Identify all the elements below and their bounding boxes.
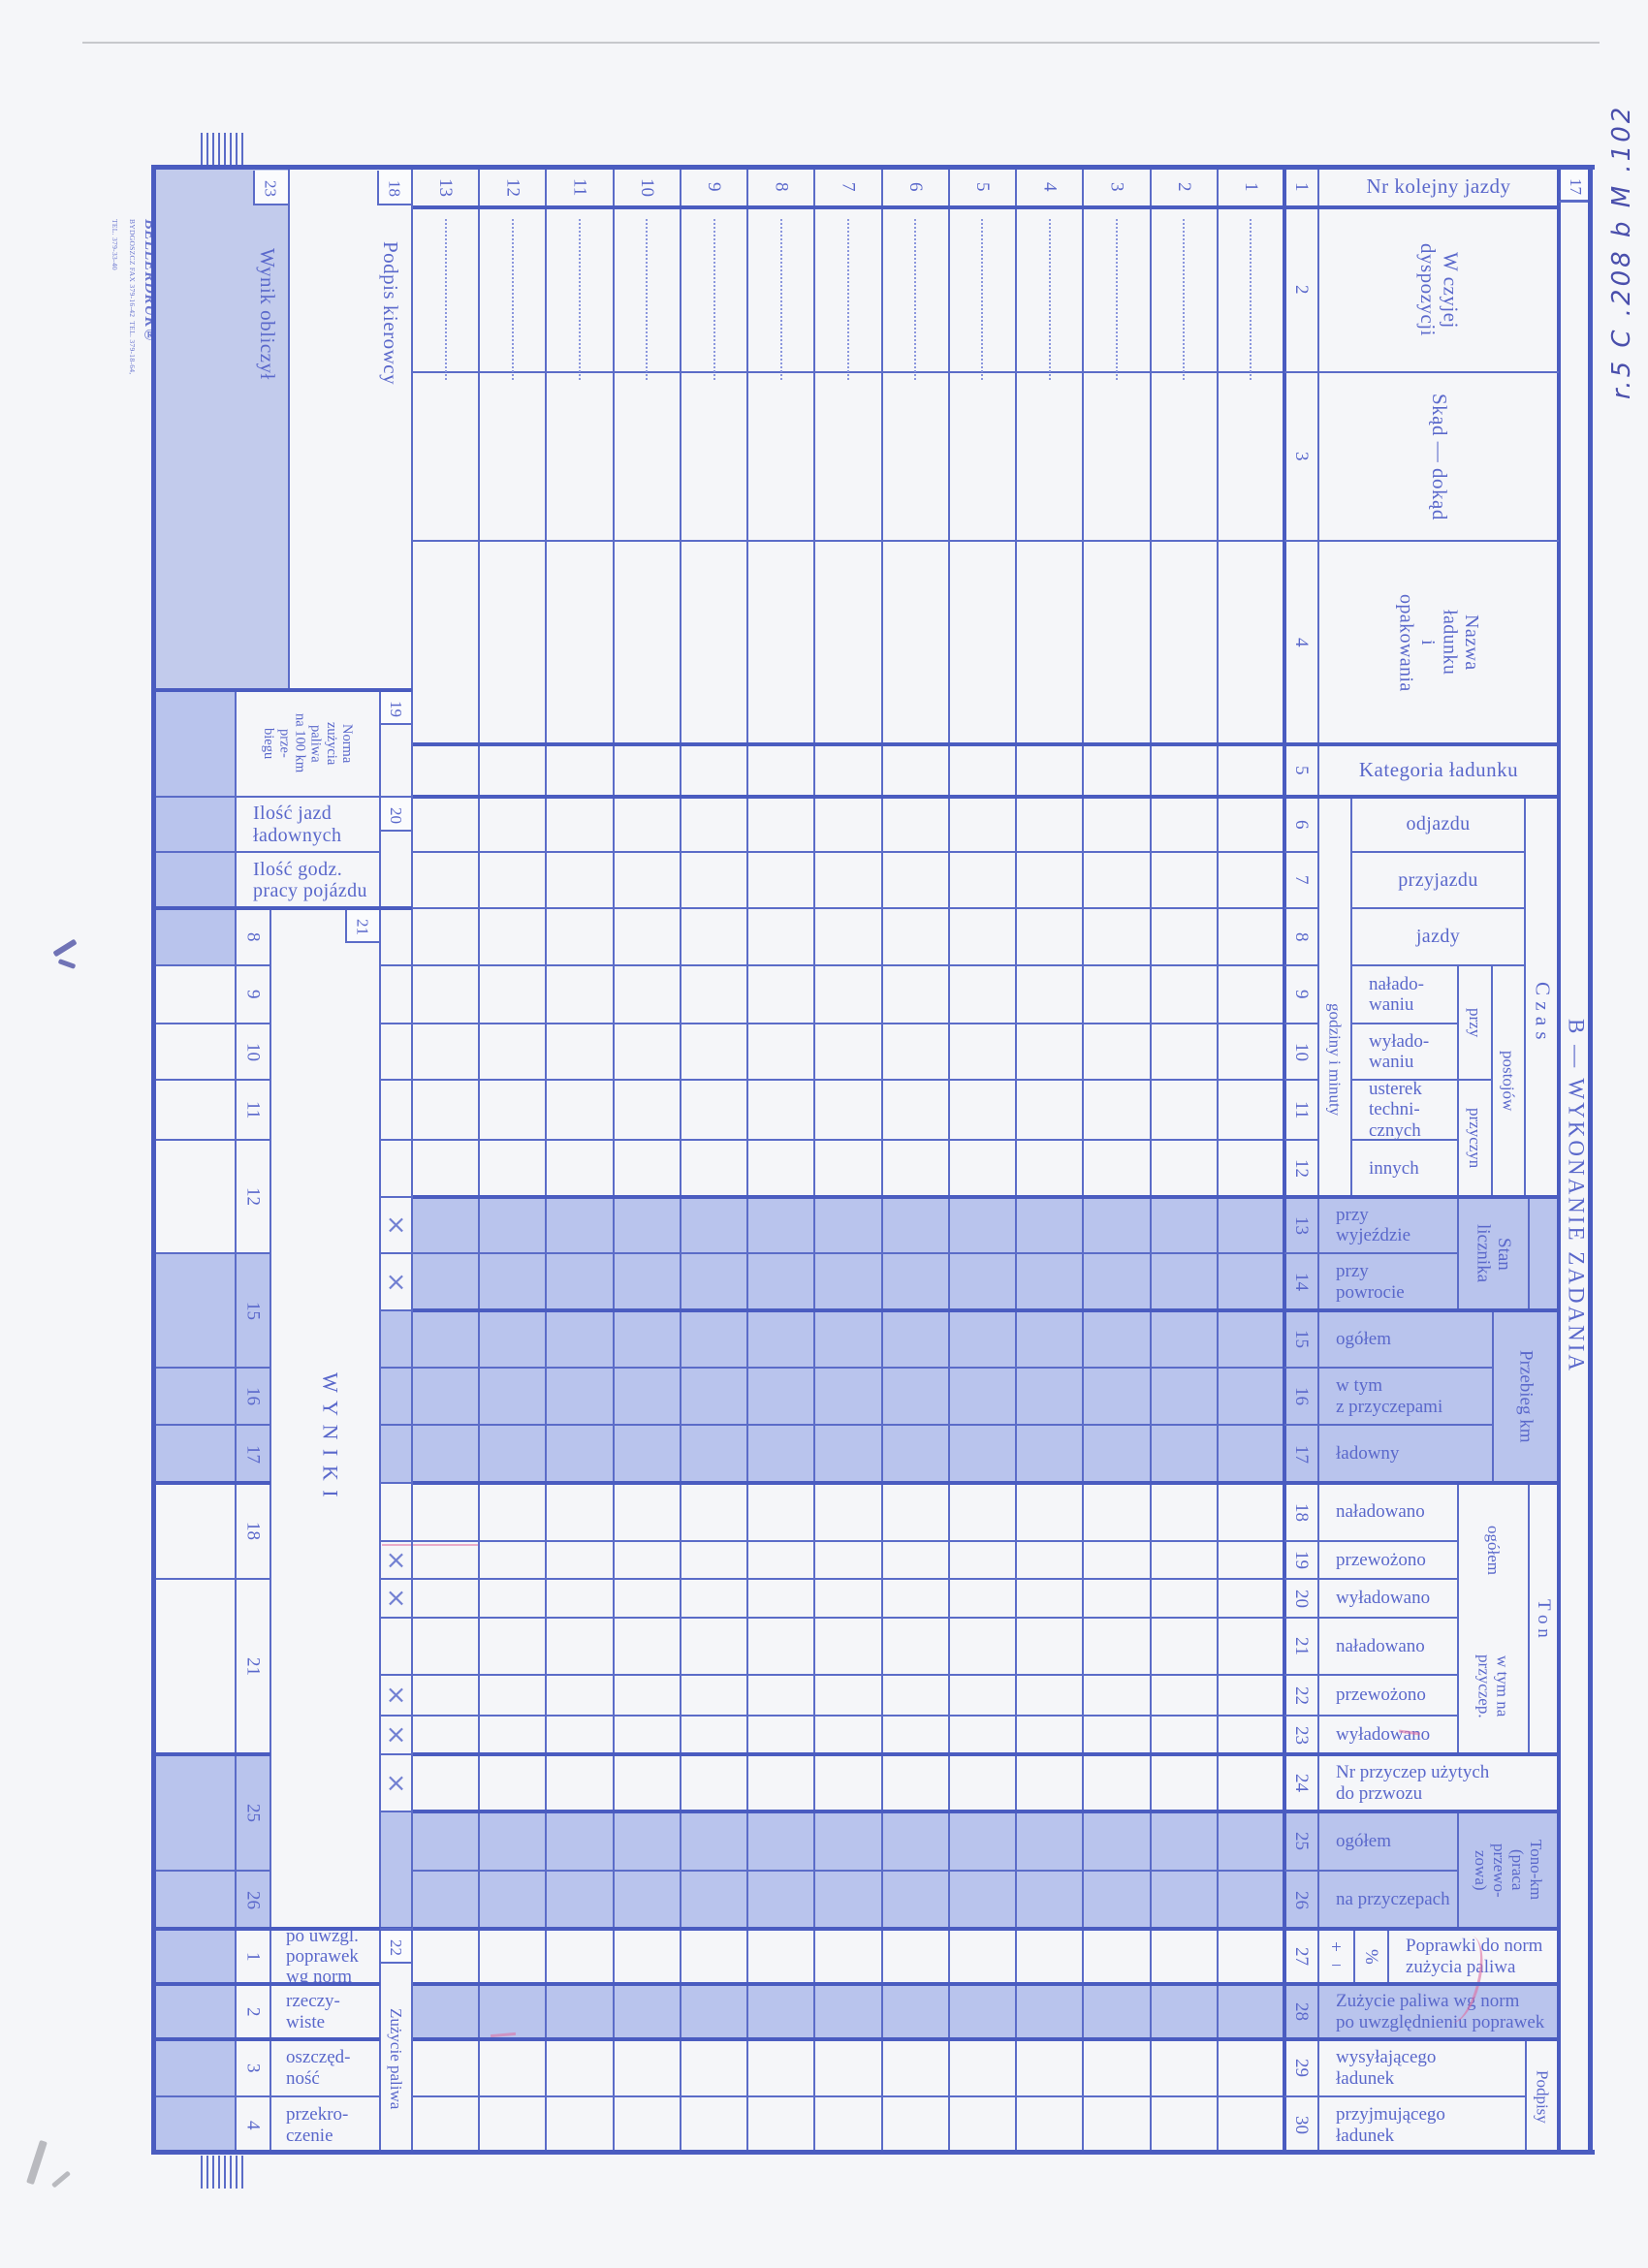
col-label-23: wyładowano [1318,1716,1458,1754]
grid-line [1524,797,1526,1197]
grid-line [1351,907,1525,909]
grid-line [288,167,290,690]
summary-row-number: 11 [238,1089,268,1130]
grid-line [151,1870,270,1872]
trip-number: 3 [1102,167,1131,207]
grid-line [1351,851,1525,853]
grid-line [1284,540,1559,542]
grid-line [1284,1810,1559,1813]
grid-line [151,796,412,798]
shade-grid-28 [412,1984,1284,2039]
form-table: Nr kolejny jazdy W czyjej dyspozycji Ską… [0,0,1648,2268]
registration-hatch-line [201,2156,203,2189]
registration-hatch-line [201,133,203,166]
col-label-1: Nr kolejny jazdy [1318,167,1559,207]
col-label-10: wyłado- waniu [1351,1024,1458,1080]
shade-left-strip-zuzycie [151,1929,236,2154]
col-label-30: przyjmującego ładunek [1318,2096,1526,2154]
column-number: 15 [1287,1319,1316,1360]
grid-line [545,167,547,2154]
column-number: 6 [1287,804,1316,845]
column-number: 23 [1287,1715,1316,1755]
x-mark: × [380,1541,412,1579]
grid-line [1284,1481,1559,1485]
col-label-2: W czyjej dyspozycji [1318,207,1559,372]
summary-row-number: 15 [238,1290,268,1331]
group-podpisy: Podpisy [1526,2039,1559,2154]
column-number: 27 [1287,1937,1316,1977]
grid-line [412,1481,1284,1485]
grid-line [412,1308,1284,1312]
grid-line [412,2037,1284,2041]
field-number-22: 22 [380,1931,412,1964]
summary-row-number: 8 [238,917,268,958]
grid-line [1528,1197,1530,1310]
grid-line [1217,167,1219,2154]
grid-line [151,1481,270,1485]
pencil-mark-1 [26,2140,48,2185]
trip-number: 12 [498,167,527,207]
trip-number: 11 [565,167,594,207]
column-number: 28 [1287,1992,1316,2032]
grid-line [412,1752,1284,1756]
grid-line [380,964,412,966]
x-mark: × [380,1197,412,1253]
summary-row-number: 21 [238,1647,268,1687]
grid-line [1284,1079,1318,1081]
shade-grid-13-17 [412,1197,1284,1483]
grid-line [1284,1139,1318,1141]
column-number: 25 [1287,1821,1316,1862]
signature-dotted-line [713,219,715,380]
label-zuzycie-row-3: oszczęd- ność [270,2039,380,2096]
trip-number: 7 [834,167,863,207]
column-number: 12 [1287,1149,1316,1189]
signature-dotted-line [646,219,648,380]
grid-line [151,2095,380,2097]
column-number: 18 [1287,1492,1316,1532]
summary-row-number: 2 [238,1992,268,2032]
column-number: 30 [1287,2105,1316,2146]
shade-left-strip-band8 [151,908,236,965]
col-label-12: innych [1351,1140,1458,1197]
grid-line [412,742,1284,746]
signature-dotted-line [780,219,782,380]
grid-line [412,1870,1284,1872]
label-wyniki: W Y N I K I [312,1349,347,1522]
col-label-9: nałado- waniu [1351,965,1458,1024]
group-przy: przy [1458,965,1492,1080]
grid-line [1150,167,1152,2154]
registration-hatch-line [230,133,232,166]
col-label-7: przyjazdu [1351,852,1525,908]
grid-line [1492,1310,1494,1483]
column-number: 1 [1287,167,1316,207]
grid-line [1284,1308,1559,1312]
col-label-28: Zużycie paliwa wg norm po uwzględnieniu … [1318,1984,1559,2039]
grid-line [411,167,413,2154]
label-zuzycie-paliwa: Zużycie paliwa [380,1964,412,2154]
registration-hatch-line [236,2156,238,2189]
column-number: 10 [1287,1031,1316,1072]
grid-line [1351,1139,1458,1141]
column-number: 26 [1287,1879,1316,1920]
col-label-3: Skąd — dokąd [1318,372,1559,541]
column-number: 7 [1287,860,1316,900]
grid-line [813,167,815,2154]
grid-line [151,1252,270,1254]
grid-line [1284,1195,1559,1199]
grid-line [1284,851,1318,853]
grid-line [380,1139,412,1141]
grid-line [1351,1079,1492,1081]
group-czas: C z a s [1525,797,1559,1197]
grid-line [151,851,380,853]
x-mark: × [380,1253,412,1310]
field-number-21: 21 [345,910,380,943]
grid-line [1284,964,1318,966]
signature-dotted-line [445,219,447,380]
col-27-plus-minus: + − [1318,1929,1354,1984]
grid-line [1284,1870,1458,1872]
x-mark: × [380,1675,412,1716]
column-number: 29 [1287,2048,1316,2089]
signature-dotted-line [579,219,581,380]
col-label-25: ogółem [1318,1811,1458,1871]
grid-line [412,1540,1284,1542]
trip-number: 5 [967,167,997,207]
group-stan-licznika: Stan licznika [1458,1197,1529,1310]
col-label-29: wysyłającego ładunek [1318,2039,1526,2096]
group-w-tym-na-przyczep: w tym na przyczep. [1458,1618,1529,1754]
grid-line [1015,167,1017,2154]
grid-line [412,907,1284,909]
col-label-11: usterek techni- cznych [1351,1080,1458,1140]
x-mark: × [380,1754,412,1811]
column-number: 9 [1287,974,1316,1015]
grid-line [151,1752,270,1756]
field-number-19: 19 [380,692,412,725]
grid-line [1528,1483,1530,1754]
grid-line [412,1424,1284,1426]
pencil-mark-2 [51,2171,71,2189]
grid-line [412,1982,1284,1986]
grid-line [380,1079,412,1081]
grid-line [412,1674,1284,1676]
summary-row-number: 25 [238,1792,268,1833]
registration-hatch-line [241,133,243,166]
grid-line [151,688,412,692]
group-ogolem: ogółem [1458,1483,1529,1618]
grid-line [1284,1752,1559,1756]
trip-number: 10 [632,167,661,207]
label-zuzycie-row-4: przekro- czenie [270,2096,380,2154]
grid-line [1284,1424,1493,1426]
grid-line [746,167,748,2154]
column-number: 13 [1287,1205,1316,1245]
frame-left [151,165,156,2155]
registration-hatch-line [206,133,208,166]
group-postojow: postojów [1492,965,1525,1197]
registration-hatch-line [212,133,214,166]
registration-hatch-line [212,2156,214,2189]
grid-line [1457,1483,1459,1754]
col-label-22: przewożono [1318,1675,1458,1716]
grid-line [151,964,270,966]
grid-line [1284,205,1559,209]
col-label-14: przy powrocie [1318,1253,1458,1310]
col-label-4: Nazwa ładunku i opakowania [1318,541,1559,744]
grid-line [380,1023,412,1024]
grid-line [412,2095,1284,2097]
grid-line [151,1367,270,1369]
grid-line [151,1079,270,1081]
group-godziny-i-minuty: godziny i minuty [1318,797,1351,1197]
grid-line [380,1367,412,1369]
frame-bottom [151,2150,1595,2155]
field-number-20: 20 [380,799,412,832]
col-label-5: Kategoria ładunku [1318,744,1559,797]
grid-line [1284,1367,1493,1369]
grid-line [412,1079,1284,1081]
grid-line [1082,167,1084,2154]
grid-line [1284,907,1318,909]
grid-line [1284,795,1559,799]
group-przebieg-km: Przebieg km [1493,1310,1559,1483]
grid-line [412,1810,1284,1813]
signature-dotted-line [1183,219,1185,380]
grid-line [1284,742,1559,746]
signature-dotted-line [847,219,849,380]
column-number: 24 [1287,1763,1316,1804]
signature-dotted-line [512,219,514,380]
column-number: 21 [1287,1626,1316,1667]
scanned-road-card: BELLERDRUK® BYDGOSZCZ FAX 379-16-42 TEL.… [0,0,1648,2268]
grid-line [269,908,271,2154]
grid-line [1351,1023,1458,1024]
grid-line [1284,2095,1526,2097]
column-number: 19 [1287,1540,1316,1581]
grid-line [151,2037,380,2041]
registration-hatch-line [236,133,238,166]
grid-line [478,167,480,2154]
col-label-6: odjazdu [1351,797,1525,852]
label-norma-zuzycia: Norma zużycia paliwa na 100 km prze- bie… [236,690,380,797]
grid-line [1284,1023,1318,1024]
trip-number: 1 [1236,167,1265,207]
grid-line [1284,371,1559,373]
field-number-23: 23 [253,171,288,205]
summary-row-number: 26 [238,1879,268,1920]
col-label-16: w tym z przyczepami [1318,1368,1493,1425]
summary-row-number: 10 [238,1031,268,1072]
trip-number: 8 [767,167,796,207]
col-27-percent: % [1354,1929,1388,1984]
summary-row-number: 1 [238,1937,268,1977]
grid-line [151,1927,412,1931]
shade-s1-15-17 [380,1310,412,1483]
shade-left-strip-top [151,690,236,908]
registration-hatch-line [224,133,226,166]
grid-line [151,1982,380,1986]
grid-line [412,1139,1284,1141]
label-zuzycie-row-2: rzeczy- wiste [270,1984,380,2039]
grid-line [151,1139,270,1141]
group-ton: T o n [1529,1483,1559,1754]
label-ilosc-godz: Ilość godz. pracy pojázdu [236,852,400,908]
column-number: 5 [1287,750,1316,791]
group-tono-km: Tono-km (praca przewo- zowa) [1458,1811,1559,1929]
summary-row-number: 18 [238,1511,268,1552]
grid-line [1284,2037,1559,2041]
frame-right [1588,165,1593,2155]
ink-smudge-2 [58,959,77,969]
column-number: 3 [1287,436,1316,477]
grid-line [412,795,1284,799]
grid-line [412,1252,1284,1254]
frame-top [151,165,1595,170]
label-zuzycie-row-1: po uwzgl. poprawek wg norm [270,1929,380,1984]
grid-line [151,1023,270,1024]
grid-line [1557,167,1561,2154]
grid-line [412,1367,1284,1369]
summary-row-number: 12 [238,1177,268,1217]
column-number: 11 [1287,1089,1316,1130]
grid-line [1350,797,1352,1197]
grid-line [380,1928,412,1930]
summary-row-number: 4 [238,2105,268,2146]
column-number: 20 [1287,1578,1316,1619]
label-wynik-obliczyl: Wynik obliczył [250,209,283,418]
col-label-19: przewożono [1318,1541,1458,1579]
grid-line [1317,167,1319,2154]
shade-s1-25-26 [380,1811,412,1929]
trip-number: 2 [1169,167,1198,207]
group-przyczyn: przyczyn [1458,1080,1492,1197]
summary-row-number: 9 [238,974,268,1015]
label-ilosc-jazd: Ilość jazd ładownych [236,797,380,852]
grid-line [1284,1927,1559,1931]
grid-line [1351,964,1525,966]
registration-hatch-line [206,2156,208,2189]
summary-row-number: 17 [238,1433,268,1474]
col-label-26: na przyczepach [1318,1871,1458,1929]
grid-line [412,540,1284,542]
grid-line [412,1195,1284,1199]
signature-dotted-line [1116,219,1118,380]
field-number-18: 18 [377,171,412,205]
summary-row-number: 16 [238,1376,268,1417]
grid-line [1284,1982,1559,1986]
grid-line [151,906,412,910]
col-label-18: naładowano [1318,1483,1458,1541]
grid-line [151,1578,270,1580]
signature-dotted-line [981,219,983,380]
column-number: 14 [1287,1262,1316,1303]
grid-line [412,1023,1284,1024]
signature-dotted-line [914,219,916,380]
trip-number: 4 [1035,167,1064,207]
col-label-8: jazdy [1351,908,1525,965]
trip-number: 6 [901,167,930,207]
grid-line [948,167,950,2154]
signature-dotted-line [1250,219,1252,380]
grid-line [380,1482,412,1484]
grid-line [613,167,615,2154]
grid-line [380,1424,412,1426]
grid-line [412,851,1284,853]
trip-number: 13 [431,167,460,207]
col-label-15: ogółem [1318,1310,1493,1368]
grid-line [881,167,883,2154]
column-number: 4 [1287,622,1316,663]
grid-line [1387,1929,1389,1984]
grid-line [412,1927,1284,1931]
col-label-21: naładowano [1318,1618,1458,1675]
x-mark: × [380,1579,412,1618]
grid-line [412,964,1284,966]
grid-line [1457,965,1459,1310]
signature-dotted-line [1049,219,1051,380]
registration-hatch-line [218,133,220,166]
col-label-17: ładowny [1318,1425,1493,1483]
grid-line [1353,1929,1355,1984]
grid-line [151,1424,270,1426]
grid-line [1284,1252,1458,1254]
grid-line [412,1715,1284,1717]
registration-hatch-line [224,2156,226,2189]
grid-line [1491,965,1493,1197]
registration-hatch-line [218,2156,220,2189]
registration-hatch-line [230,2156,232,2189]
col-label-24: Nr przyczep użytych do przwozu [1318,1754,1559,1811]
col-label-20: wyładowano [1318,1579,1458,1618]
column-number: 16 [1287,1376,1316,1417]
column-number: 22 [1287,1675,1316,1716]
label-podpis-kierowcy: Podpis kierowcy [374,209,405,418]
ink-smudge-1 [52,939,77,958]
registration-hatch-line [241,2156,243,2189]
grid-line [412,1617,1284,1619]
grid-line [412,1578,1284,1580]
trip-number: 9 [700,167,729,207]
column-number: 8 [1287,917,1316,958]
col-label-13: przy wyjeździe [1318,1197,1458,1253]
grid-line [1283,167,1286,2154]
column-number: 2 [1287,269,1316,310]
grid-line [680,167,681,2154]
summary-row-number: 3 [238,2048,268,2089]
column-number: 17 [1287,1433,1316,1474]
x-mark: × [380,1716,412,1754]
